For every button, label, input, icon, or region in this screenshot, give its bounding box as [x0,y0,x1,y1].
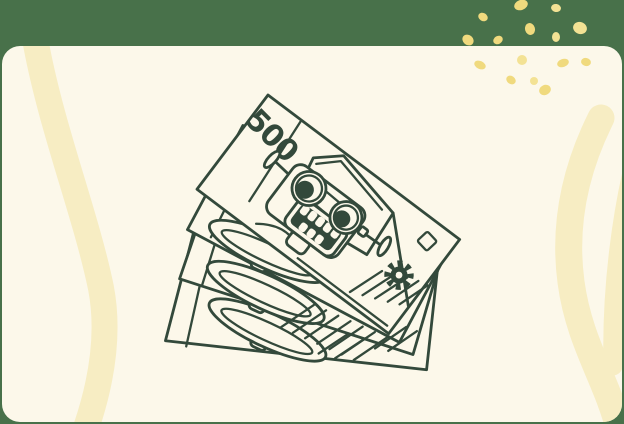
app-canvas: 500 [0,0,624,424]
